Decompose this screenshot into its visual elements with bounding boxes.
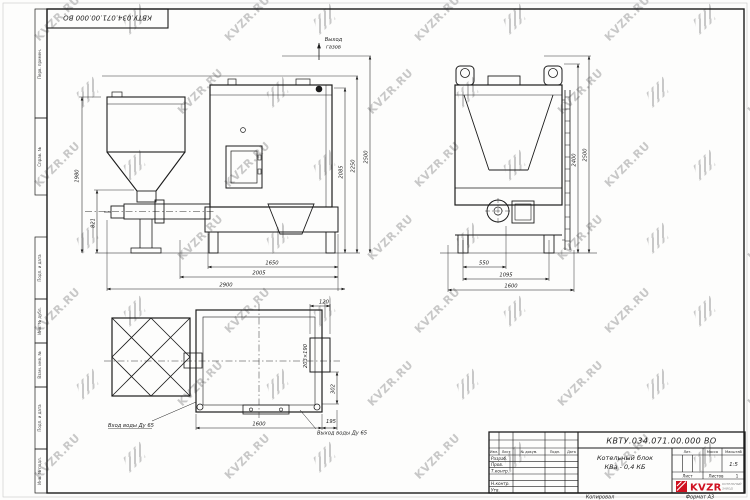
dim-side-bottom-1: 550: [479, 261, 490, 267]
sheet-label: Лист: [682, 474, 693, 479]
sheets-label: Листов: [709, 474, 725, 479]
product-name-line1: Котельный блок: [597, 454, 653, 462]
drawing-sheet: KVZR.RUKVZR.RUKVZR.RUKVZR.RUKVZR.RUKVZR.…: [0, 0, 750, 500]
row-label-prov: Пров.: [491, 462, 503, 467]
dim-front-bottom-3: 2900: [219, 283, 233, 289]
water-outlet-label: Выход воды Ду 65: [317, 431, 368, 437]
col-header-doc: № докум.: [521, 450, 538, 454]
water-inlet-label: Вход воды Ду 65: [108, 423, 155, 429]
title-doc-number: КВТУ.034.071.00.000 ВО: [606, 437, 716, 446]
col-header-date: Дата: [567, 450, 576, 454]
dim-side-bottom-2: 1095: [499, 273, 513, 279]
kvzr-logo-text: KVZR: [690, 483, 722, 494]
corner-doc-number: КВТУ.034.071.00.000 ВО: [63, 14, 152, 22]
dim-front-bottom-1: 1650: [265, 261, 279, 267]
col-header-sign: Подп.: [550, 450, 560, 454]
margin-label: Подп. и дата: [37, 254, 42, 282]
dim-front-right-2: 2250: [351, 159, 357, 173]
margin-column: Перв. примен. Справ. № Подп. и дата Инв.…: [35, 9, 47, 493]
margin-label: Инв. № дубл.: [37, 307, 42, 334]
corner-stamp: КВТУ.034.071.00.000 ВО: [47, 9, 168, 28]
col-header-izm: Изм.: [490, 450, 498, 454]
col-header-list: Лист: [502, 450, 511, 454]
plan-view-dimensions: 120 203×190 302 1600 195 Вход воды Ду 65…: [108, 300, 368, 437]
copied-label: Копировал: [586, 495, 615, 500]
row-label-tkontr: Т.контр.: [491, 469, 509, 474]
drawing-canvas: Перв. примен. Справ. № Подп. и дата Инв.…: [0, 0, 750, 500]
lit-label: Лит.: [683, 450, 691, 454]
margin-label: Перв. примен.: [37, 49, 42, 79]
dim-plan-bottom-2: 195: [326, 419, 337, 425]
scale-label: Масштаб: [725, 450, 742, 454]
margin-label: Взам. инв. №: [37, 351, 42, 378]
mass-label: Масса: [707, 450, 718, 454]
gas-outlet-label: газов: [326, 45, 341, 51]
margin-label: Инв. № подл.: [37, 457, 42, 485]
dim-side-bottom-3: 1600: [504, 284, 518, 290]
dim-side-right-2: 2500: [583, 148, 589, 162]
dim-front-bottom-2: 2005: [252, 271, 266, 277]
format-label: Формат А3: [686, 495, 714, 500]
dim-front-right-3: 2500: [364, 150, 370, 164]
dim-plan-bottom-1: 1600: [252, 422, 266, 428]
side-view-dimensions: 2400 2500 550 1095 1600: [448, 56, 591, 292]
front-view: [85, 43, 360, 253]
dim-front-height-left: 1980: [75, 169, 81, 183]
row-label-nkontr: Н.контр.: [491, 481, 510, 486]
dim-front-right-1: 2085: [339, 165, 345, 179]
kvzr-logo-subtext: КОТЕЛЬНЫЙ: [722, 481, 742, 486]
margin-label: Подп. и дата: [37, 404, 42, 432]
dim-front-burner-height: 821: [91, 218, 97, 228]
scale-value: 1:5: [729, 462, 738, 468]
kvzr-logo: KVZR КОТЕЛЬНЫЙ ЗАВОД: [676, 481, 742, 494]
title-block: КВТУ.034.071.00.000 ВО Котельный блок КВ…: [489, 432, 745, 494]
dim-plan-window: 203×190: [303, 343, 309, 368]
dim-plan-top: 120: [319, 300, 330, 306]
row-label-razrab: Разраб.: [491, 456, 507, 461]
dim-side-right-1: 2400: [572, 153, 578, 167]
kvzr-logo-subtext: ЗАВОД: [722, 487, 733, 491]
margin-label: Справ. №: [37, 147, 42, 166]
product-name-line2: КВа - 0,4 КБ: [604, 463, 646, 471]
row-label-utv: Утв.: [491, 488, 500, 493]
dim-plan-right: 302: [331, 384, 337, 394]
gas-outlet-label: Выход: [325, 37, 343, 43]
sheets-value: 1: [736, 474, 739, 479]
